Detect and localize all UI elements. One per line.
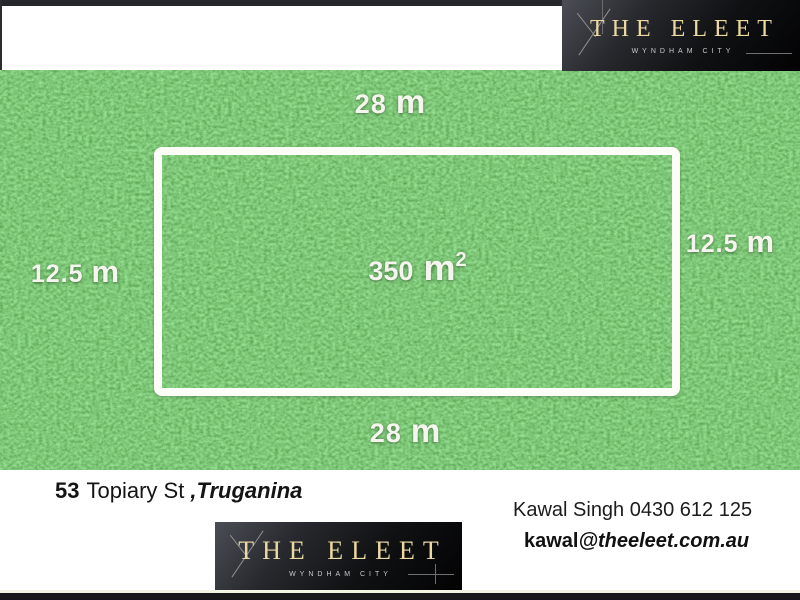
- logo-crosshair-h-icon: [746, 53, 792, 54]
- left-border-edge: [0, 0, 2, 70]
- brand-tagline: WYNDHAM CITY: [628, 48, 735, 55]
- eleet-logo-bottom: THE ELEET WYNDHAM CITY: [215, 522, 462, 592]
- eleet-logo-top: THE ELEET WYNDHAM CITY: [562, 0, 800, 71]
- dimension-value: 12.5: [686, 230, 739, 258]
- property-address: 53Topiary St,Truganina: [55, 478, 302, 504]
- dimension-left-depth: 12.5m: [15, 256, 135, 287]
- agent-email-user: kawal: [524, 530, 578, 552]
- dimension-value: 28: [370, 418, 402, 448]
- agent-email: kawal@theeleet.com.au: [524, 530, 749, 553]
- flyer-canvas: 28m 12.5m 12.5m 350m2 28m THE ELEET WYND…: [0, 0, 800, 600]
- logo-crosshair-v-icon: [435, 564, 436, 584]
- dimension-right-depth: 12.5m: [675, 226, 785, 257]
- area-exponent: 2: [455, 249, 466, 271]
- agent-email-domain: @theeleet.com.au: [578, 530, 749, 552]
- dimension-unit: m: [747, 224, 775, 259]
- brand-name: THE ELEET: [230, 536, 446, 566]
- address-street-number: 53: [55, 478, 79, 503]
- agent-name-phone: Kawal Singh 0430 612 125: [513, 499, 752, 522]
- dimension-unit: m: [396, 83, 425, 120]
- dimension-value: 12.5: [31, 260, 84, 288]
- brand-tagline: WYNDHAM CITY: [285, 571, 392, 578]
- dimension-unit: m: [92, 254, 120, 289]
- address-street-name: Topiary St: [86, 478, 184, 503]
- bottom-border-bar: [0, 593, 800, 600]
- lot-area-label: 350m2: [330, 250, 505, 286]
- area-unit: m: [423, 247, 455, 288]
- area-value: 350: [368, 256, 413, 286]
- logo-crosshair-h-icon: [408, 574, 454, 575]
- dimension-bottom-width: 28m: [320, 414, 490, 447]
- address-suburb: Truganina: [196, 478, 302, 503]
- brand-name: THE ELEET: [583, 16, 779, 43]
- dimension-unit: m: [411, 412, 440, 449]
- dimension-top-width: 28m: [300, 85, 480, 118]
- dimension-value: 28: [355, 89, 387, 119]
